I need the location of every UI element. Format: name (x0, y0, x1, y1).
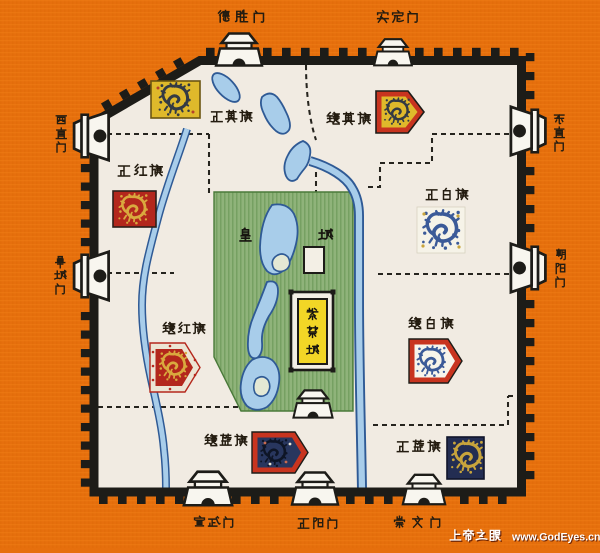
svg-text:www.GodEyes.cn: www.GodEyes.cn (511, 531, 600, 543)
